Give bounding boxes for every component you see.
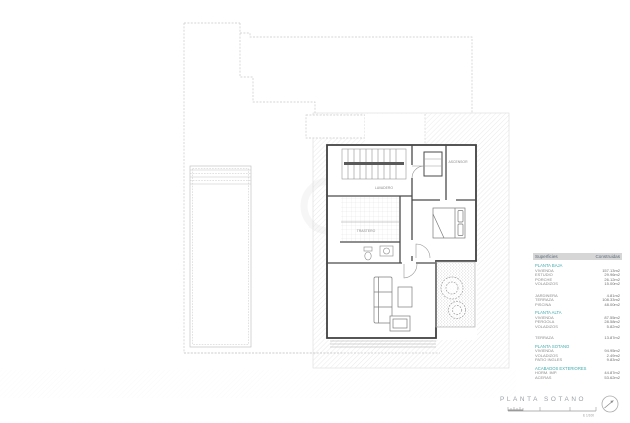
room-label-laundry: LAVADERO	[375, 186, 393, 190]
scale-text: E 1/100	[583, 414, 594, 418]
row-value: 5.82m2	[607, 325, 620, 330]
coffee-table	[398, 287, 412, 307]
row-label: TERRAZA	[535, 336, 554, 341]
swimming-pool	[190, 166, 251, 347]
row-value: 53.62m2	[604, 376, 620, 381]
room-label-storage: TRASTERO	[357, 229, 376, 233]
table-row-item: PATIO INGLES9.83m2	[533, 358, 622, 363]
row-value: 9.83m2	[607, 358, 620, 363]
table-row-item: PISCINA48.00m2	[533, 303, 622, 308]
armchair	[390, 316, 410, 331]
bed	[433, 208, 465, 238]
col-header-construidas: Construidas	[595, 253, 620, 260]
table-row-item: ACERAS53.62m2	[533, 376, 622, 381]
row-value: 15.00m2	[604, 282, 620, 287]
row-label: PISCINA	[535, 303, 551, 308]
room-label-elevator: ASCENSOR	[448, 160, 468, 164]
row-label: VOLADIZOS	[535, 325, 558, 330]
scale-bar: E 1/100	[508, 407, 596, 418]
sofa	[374, 277, 392, 323]
table-row-item: TERRAZA13.87m2	[533, 336, 622, 341]
col-header-superficies: Superficies	[535, 253, 558, 260]
areas-table-header: Superficies Construidas	[533, 253, 622, 260]
row-value: 48.00m2	[604, 303, 620, 308]
areas-table-body: PLANTA BAJAVIVIENDA157.13m2ESTUDIO29.96m…	[533, 264, 622, 380]
drawing-title: PLANTA SOTANO	[500, 396, 600, 403]
row-value: 13.87m2	[604, 336, 620, 341]
row-label: VOLADIZOS	[535, 282, 558, 287]
north-arrow-icon	[602, 396, 618, 412]
laundry-floor-tiles	[341, 197, 399, 241]
areas-table: Superficies Construidas PLANTA BAJAVIVIE…	[533, 253, 622, 380]
gravel-patio	[436, 262, 475, 327]
row-label: ACERAS	[535, 376, 551, 381]
row-label: PATIO INGLES	[535, 358, 562, 363]
